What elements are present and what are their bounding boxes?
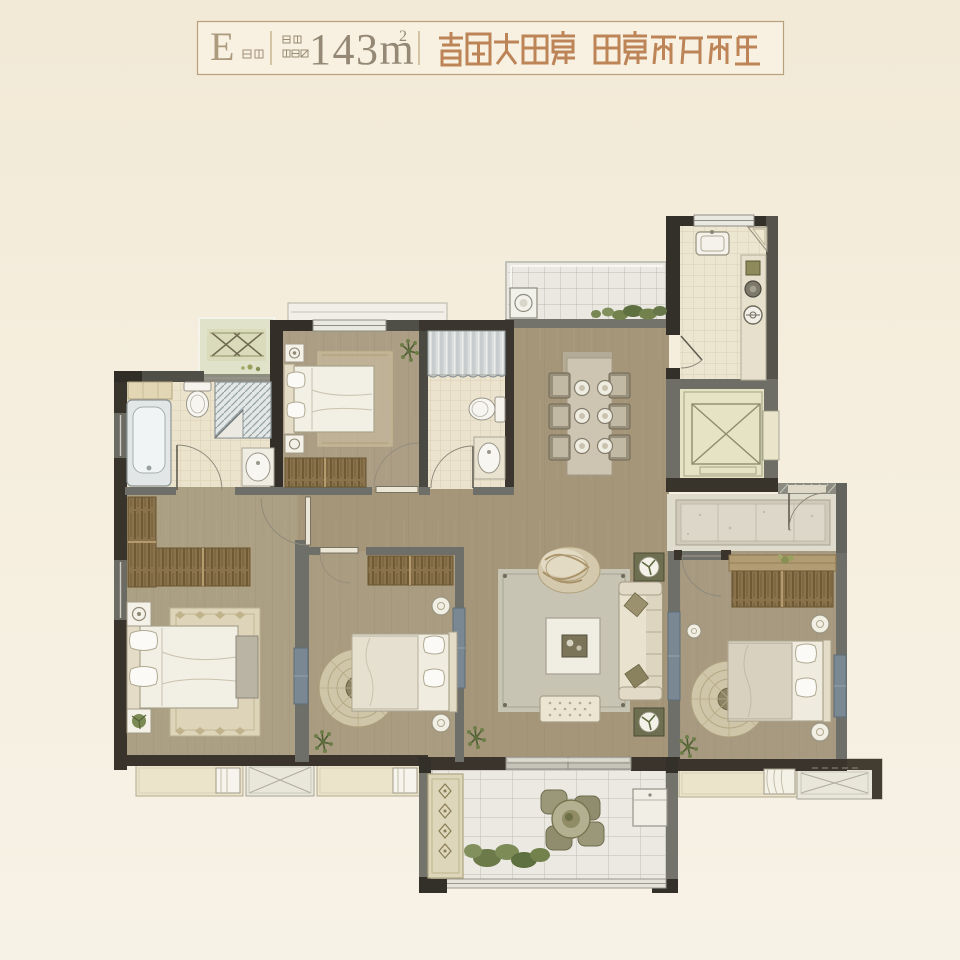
svg-text:E: E	[210, 24, 234, 69]
svg-text:2: 2	[399, 28, 407, 45]
